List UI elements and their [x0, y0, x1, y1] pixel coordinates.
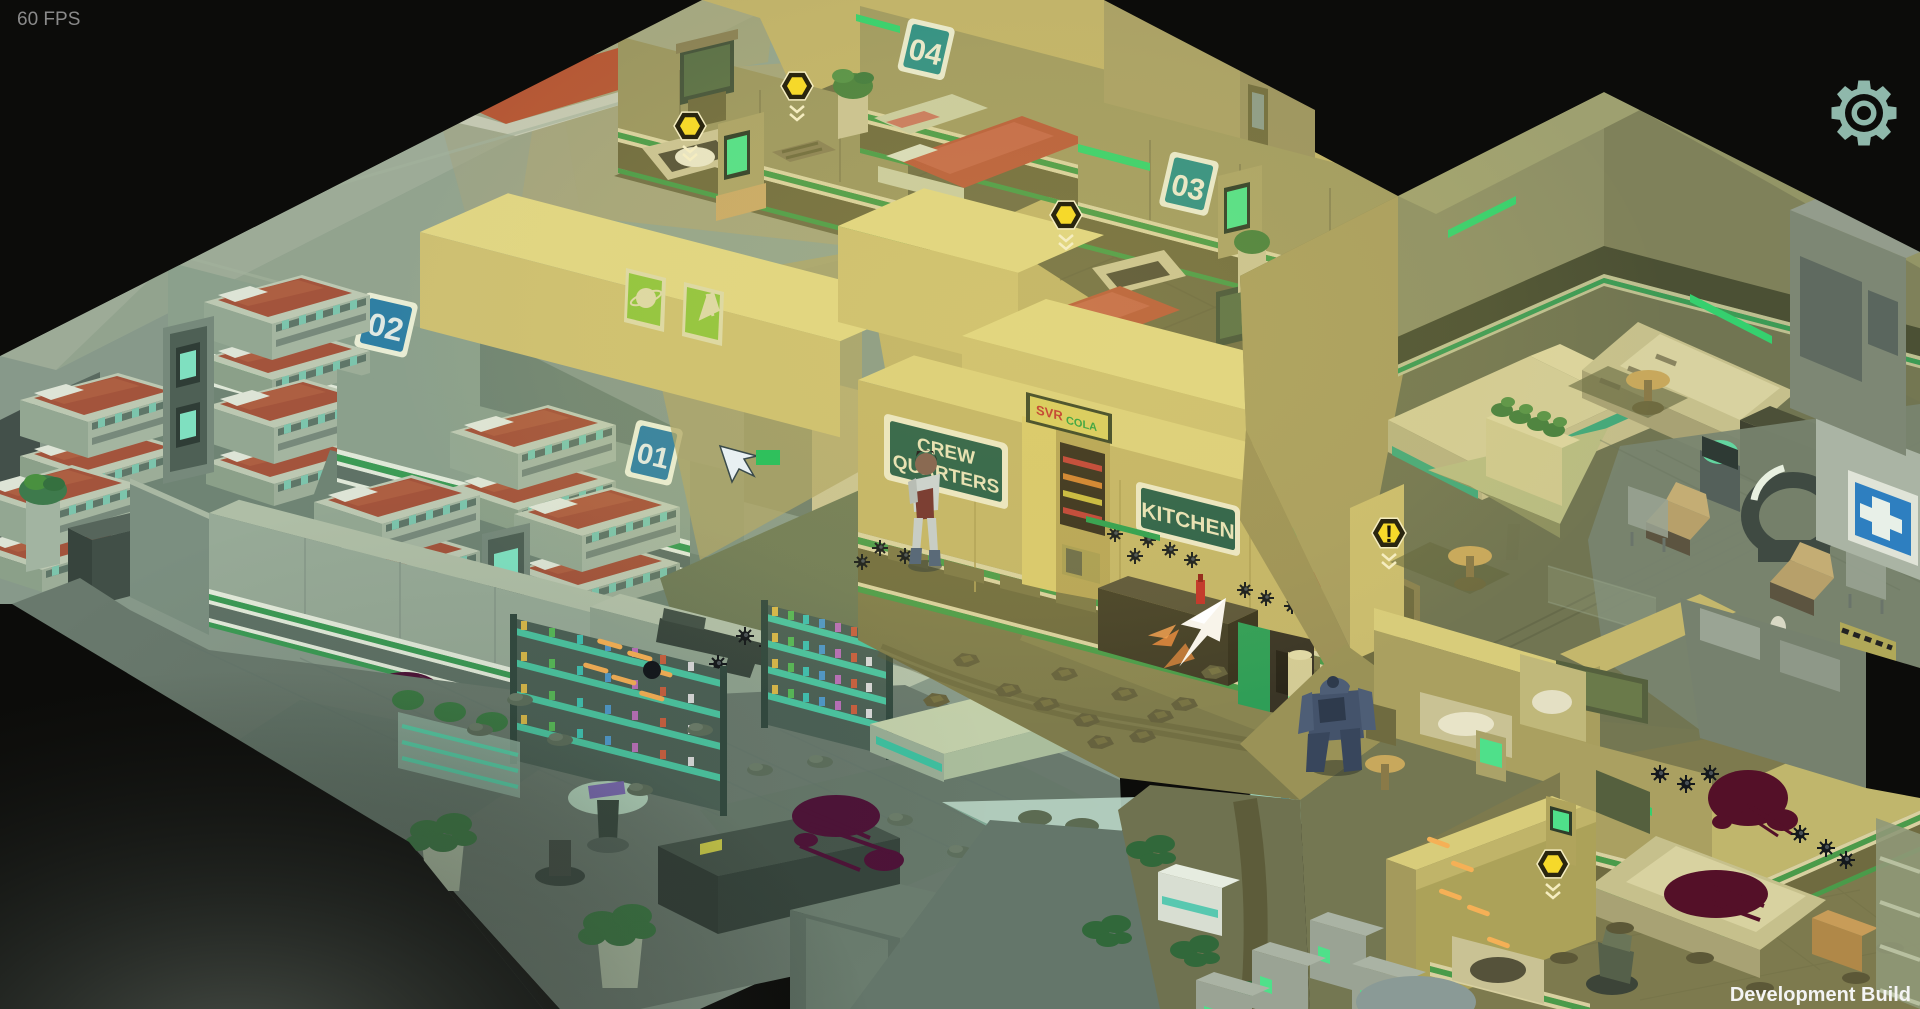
svg-text:Development Build: Development Build: [1730, 984, 1911, 1006]
svg-text:!: !: [1385, 521, 1393, 548]
svg-text:60 FPS: 60 FPS: [17, 9, 80, 30]
